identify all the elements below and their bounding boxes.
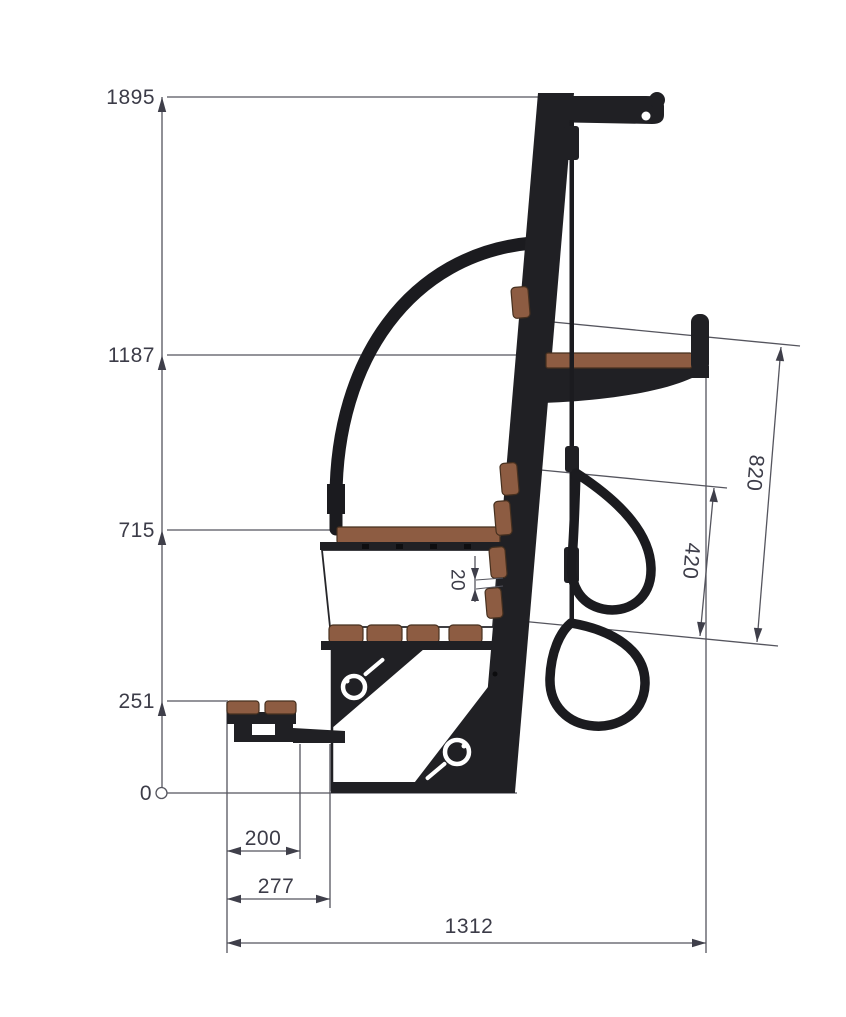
dimension-lines-layer	[156, 97, 800, 953]
dim-label-0: 0	[140, 782, 152, 805]
hook-opening	[642, 112, 651, 121]
mast-pad	[485, 587, 503, 618]
ground-origin-marker	[156, 788, 167, 799]
arrow-820-top	[776, 347, 784, 361]
arrow-200-left	[227, 847, 241, 855]
dim-label-200: 200	[245, 827, 282, 850]
upper-seat-plank	[546, 353, 692, 368]
upper-seat	[530, 314, 709, 403]
upper-seat-end-post	[691, 314, 709, 372]
step-pad-left	[227, 701, 259, 714]
dim-label-820: 820	[742, 454, 768, 492]
equipment-structure	[227, 92, 709, 793]
top-arm-hook	[545, 92, 665, 124]
suspension-assembly	[550, 120, 651, 726]
dim-line-820	[757, 347, 781, 642]
dim-label-420: 420	[678, 542, 704, 580]
mast-pad	[500, 462, 520, 495]
arrow-715	[158, 530, 166, 545]
hand-ring-lower	[550, 623, 645, 726]
ext-line-ring-mid	[520, 468, 727, 488]
hook-knob	[649, 92, 665, 108]
post-bolt	[493, 672, 498, 677]
foot-step	[227, 701, 345, 743]
arrow-1312-left	[227, 939, 241, 947]
dim-label-20: 20	[447, 569, 468, 591]
step-bracket	[234, 722, 293, 742]
mast-pad	[494, 500, 513, 535]
arrow-1312-right	[692, 939, 706, 947]
dimension-labels-layer: 1895 1187 715 251 0 200 277 1312 820 420	[106, 86, 768, 938]
seat-frame-box	[322, 550, 499, 627]
turnbuckle-top	[564, 126, 579, 160]
arrow-420-top	[710, 488, 718, 502]
dim-label-1895: 1895	[106, 86, 155, 109]
dim-label-1187: 1187	[108, 344, 155, 367]
arrow-277-right	[316, 895, 330, 903]
drawing-svg: 1895 1187 715 251 0 200 277 1312 820 420	[0, 0, 846, 1017]
dim-label-715: 715	[118, 519, 155, 542]
arrow-1187	[158, 355, 166, 370]
technical-drawing-canvas: 1895 1187 715 251 0 200 277 1312 820 420	[0, 0, 846, 1017]
dim-label-1312: 1312	[445, 915, 494, 938]
arrow-200-right	[286, 847, 300, 855]
mid-seat-frame-bar	[320, 542, 506, 550]
dim-label-251: 251	[118, 690, 155, 713]
ext-line-ring-bottom	[510, 620, 778, 646]
step-pad-right	[265, 701, 296, 714]
hand-ring-upper	[572, 473, 652, 610]
mast-pad	[489, 546, 508, 578]
mast-pad	[511, 286, 531, 318]
arrow-420-bottom	[697, 622, 705, 636]
main-post	[479, 93, 574, 792]
turnbuckle-mid	[565, 446, 579, 472]
bench-frame-bar	[321, 641, 504, 650]
arrow-251	[158, 701, 166, 716]
arrow-820-bottom	[754, 628, 762, 642]
upper-seat-bracket	[530, 366, 709, 403]
mid-seat-plank	[337, 527, 500, 543]
arrow-277-left	[227, 895, 241, 903]
dim-label-277: 277	[258, 875, 295, 898]
arrow-1895	[158, 97, 166, 112]
